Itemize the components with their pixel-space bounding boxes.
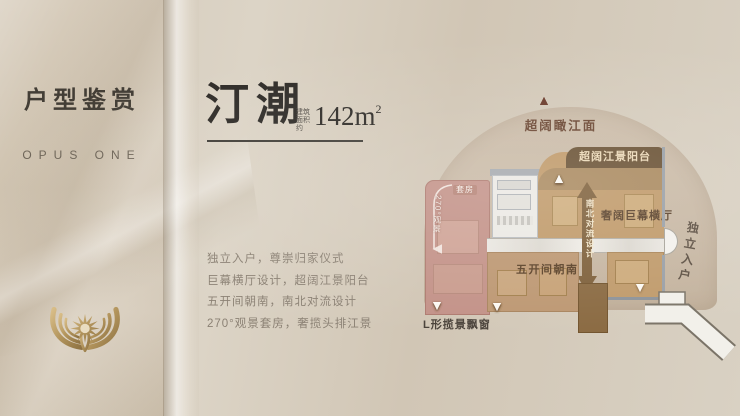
up-arrow-icon: [540, 97, 548, 105]
area-prefix: 建筑 面积约: [296, 109, 314, 133]
wall-segment: [662, 147, 665, 227]
flow-label: 南北对流设计: [578, 199, 596, 259]
entry-steps-shape: [631, 287, 740, 365]
balcony-banner: 超阔江景阳台: [566, 147, 664, 168]
suite-view-label: 270°观景: [431, 195, 444, 234]
kitchen-block: [492, 175, 538, 238]
appliance: [497, 180, 531, 190]
utility-block: [578, 283, 608, 333]
bed: [615, 260, 649, 284]
marketing-page: 户型鉴赏 OPUS ONE 汀潮 建筑 面积约 142m2 独立入户，尊崇归家仪…: [0, 0, 740, 416]
area-superscript: 2: [376, 102, 382, 116]
phoenix-emblem-icon: [42, 290, 128, 360]
feature-item: 270°观景套房，奢揽头排江景: [207, 314, 382, 336]
south-facing-label: 五开间朝南: [516, 261, 579, 277]
area-prefix-line2: 面积约: [296, 117, 314, 133]
river-view-label: 超阔瞰江面: [503, 115, 619, 134]
feature-item: 独立入户，尊崇归家仪式: [207, 249, 382, 271]
area-prefix-line1: 建筑: [296, 109, 314, 117]
headline-divider: [207, 140, 363, 142]
north-south-flow-arrow: 南北对流设计: [577, 182, 597, 292]
up-arrow-icon: [555, 175, 563, 183]
living-furniture: [552, 196, 578, 226]
page-fold: [163, 0, 199, 416]
floor-plan: 超阔瞰江面 270°观景 套房 超阔江景阳台: [415, 85, 740, 385]
appliance: [497, 216, 533, 225]
down-arrow-icon: [433, 302, 441, 310]
appliance: [497, 194, 531, 210]
feature-item: 巨幕横厅设计，超阔江景阳台: [207, 271, 382, 293]
suite-label-badge: 套房: [453, 185, 477, 195]
bay-window-label: L形揽景飘窗: [423, 316, 491, 332]
feature-list: 独立入户，尊崇归家仪式 巨幕横厅设计，超阔江景阳台 五开间朝南，南北对流设计 2…: [207, 249, 382, 335]
area-value: 142m2: [314, 101, 382, 132]
section-title: 户型鉴赏: [0, 80, 164, 115]
plan-name: 汀潮: [205, 80, 307, 130]
corridor: [487, 238, 664, 253]
down-arrow-icon: [493, 303, 501, 311]
feature-item: 五开间朝南，南北对流设计: [207, 292, 382, 314]
brand-name: OPUS ONE: [0, 148, 164, 162]
area-number: 142m: [314, 101, 376, 131]
suite-furniture: [433, 264, 483, 294]
